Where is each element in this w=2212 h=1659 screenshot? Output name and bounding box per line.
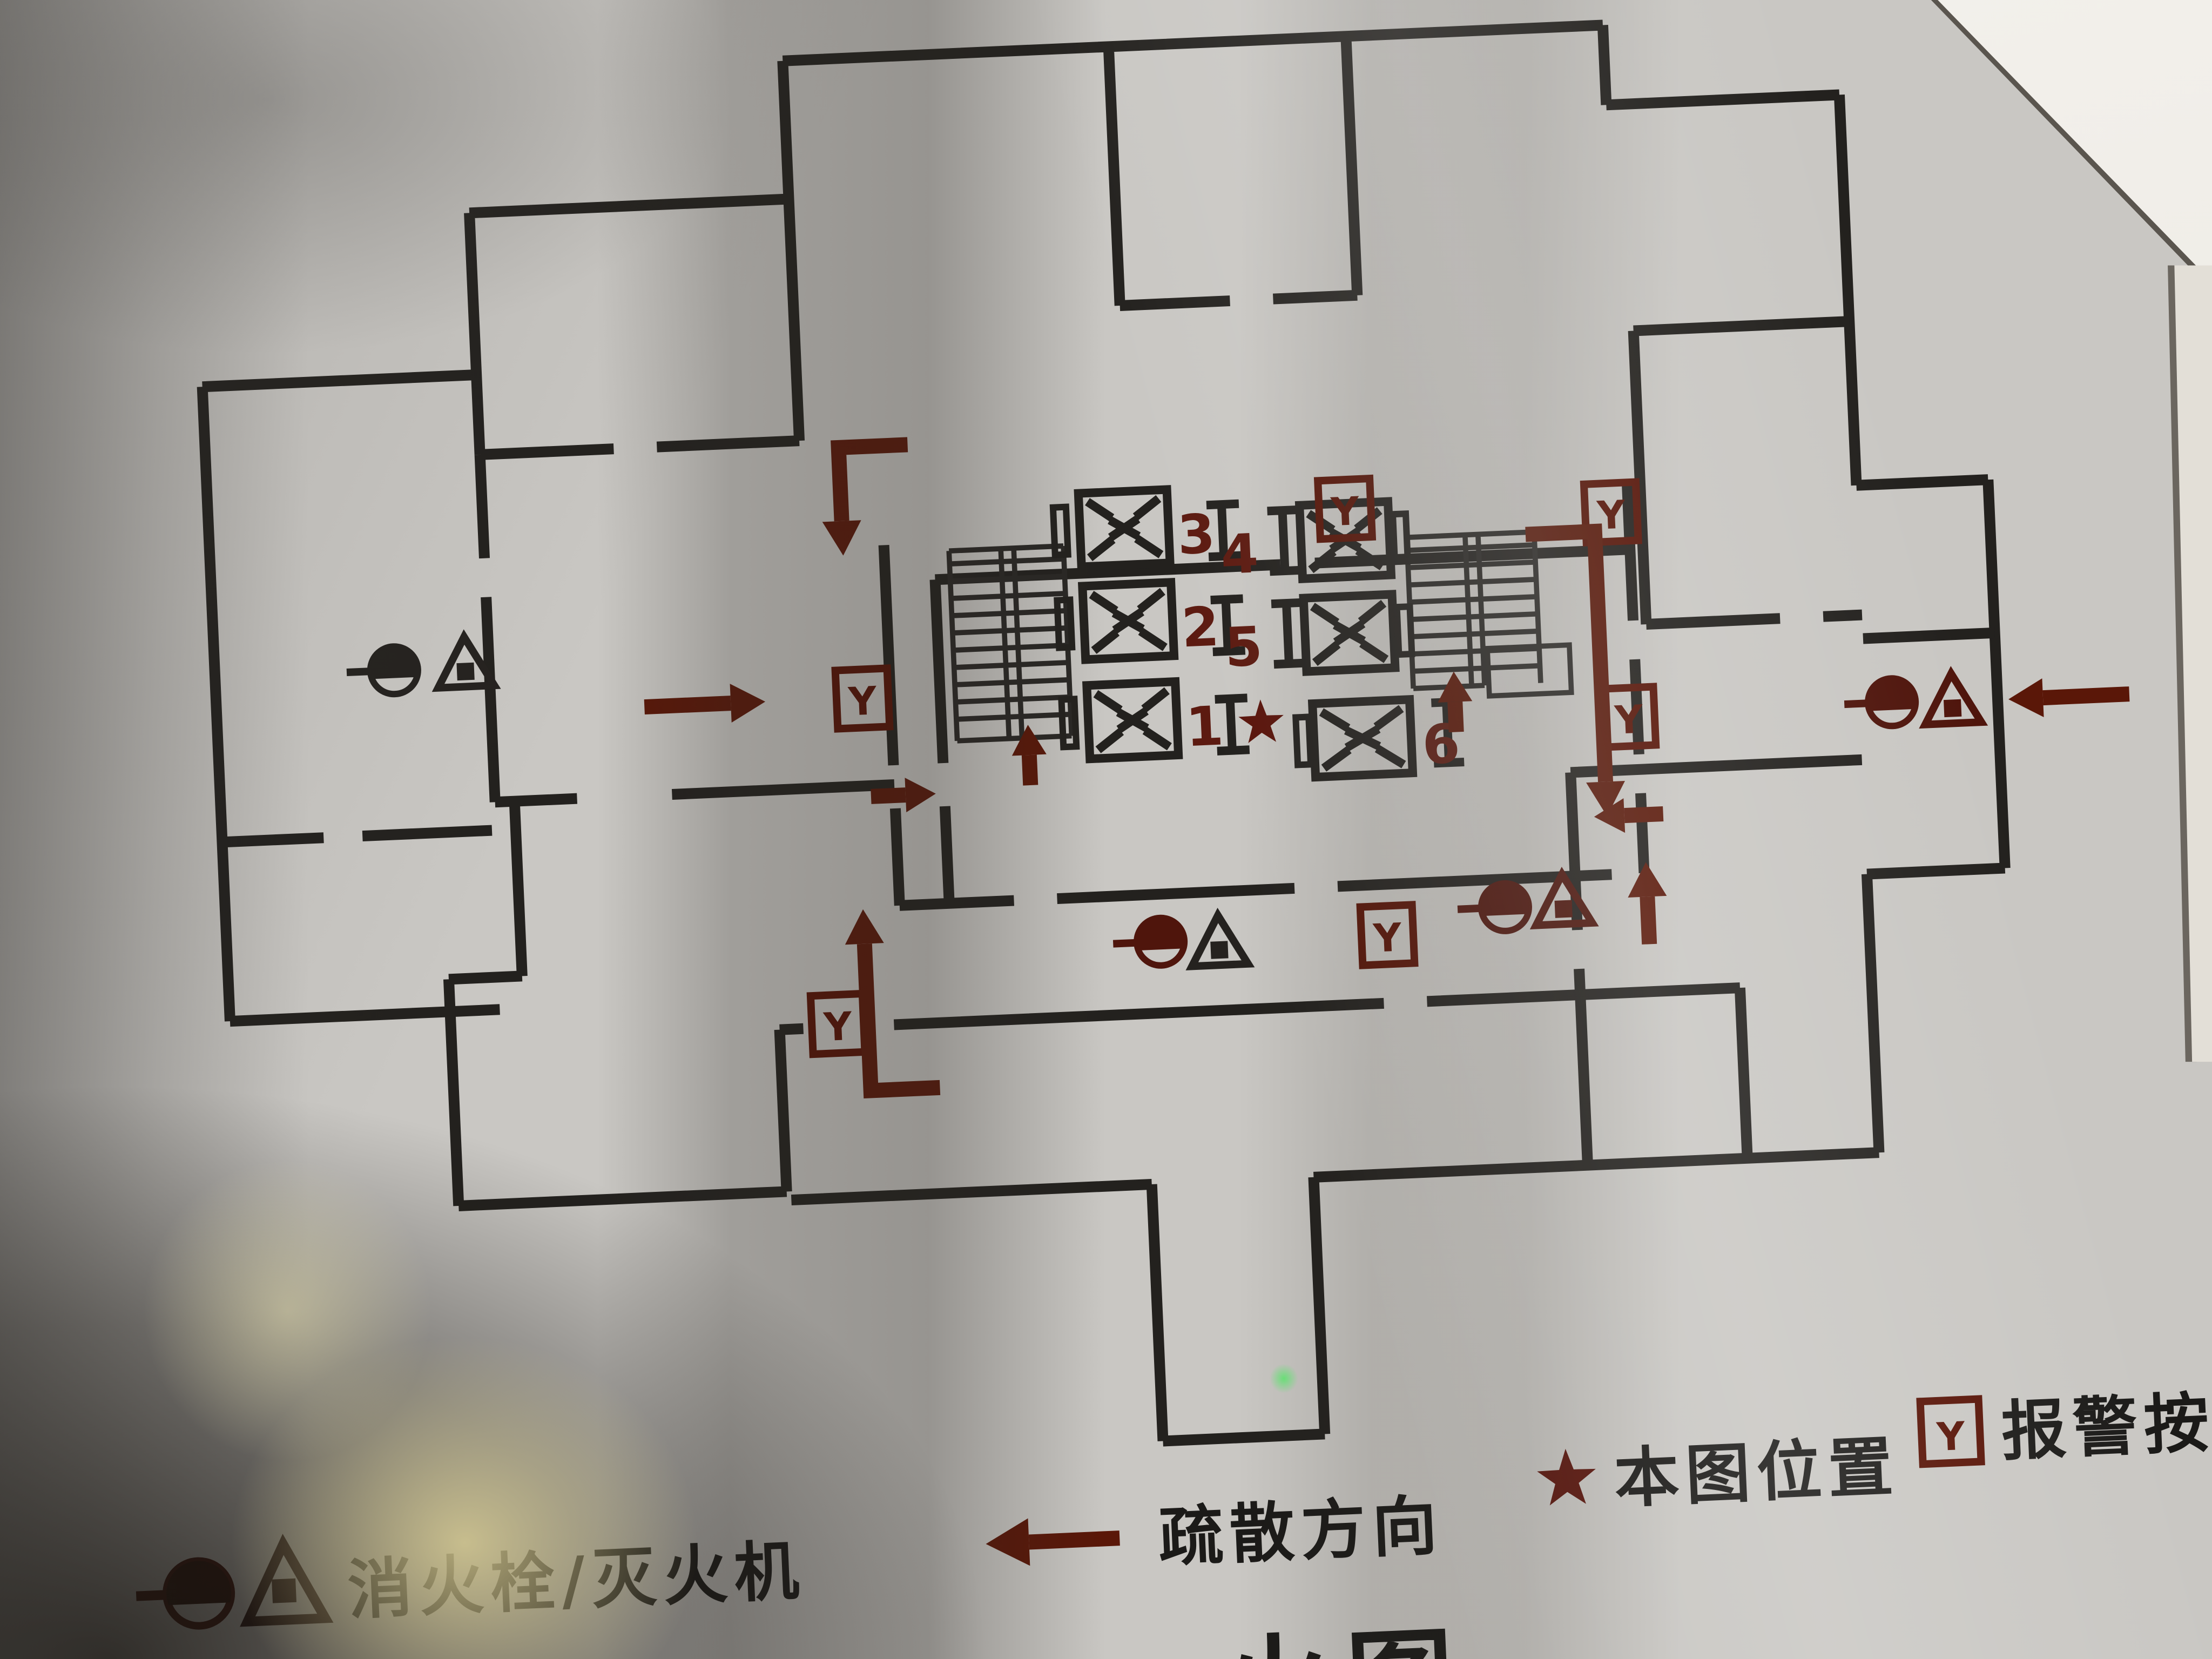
legend-location-star-icon xyxy=(1536,1447,1597,1506)
elevator-4: 4 xyxy=(1219,501,1409,586)
fire-hydrant-icon xyxy=(1456,882,1530,933)
fire-extinguisher-icon xyxy=(1923,672,1981,724)
svg-text:Y: Y xyxy=(1330,488,1361,535)
legend-evacuation-arrow-icon xyxy=(985,1514,1121,1568)
elevator-door-icon xyxy=(1296,717,1311,765)
legend-label-alarm: 报警按钮 xyxy=(2000,1382,2212,1470)
evacuation-arrow-down-elbow xyxy=(819,444,913,556)
alarm-button-icon: Y xyxy=(811,994,865,1054)
evacuation-arrow-left xyxy=(2008,675,2130,719)
elevator-number: 5 xyxy=(1223,615,1264,679)
evacuation-arrow-up xyxy=(1627,861,1669,945)
elevator-number: 4 xyxy=(1219,522,1260,586)
elevator-6: 6 xyxy=(1295,697,1461,782)
elevator-door-icon xyxy=(1397,606,1412,655)
elevator-number: 2 xyxy=(1180,595,1220,660)
alarm-button-icon: Y xyxy=(1360,905,1415,965)
svg-text:Y: Y xyxy=(1613,696,1644,743)
fire-hydrant-icon xyxy=(346,645,419,696)
elevator-5: 5 xyxy=(1223,594,1413,679)
elevator-number: 1 xyxy=(1184,694,1225,759)
legend-alarm-button-icon: Y xyxy=(1920,1399,1981,1465)
left-wing-walls xyxy=(206,401,1748,1224)
svg-text:Y: Y xyxy=(822,1003,854,1050)
current-location-star-icon xyxy=(1238,698,1285,743)
fire-hydrant-icon xyxy=(1843,677,1917,728)
legend: 消火栓/灭火机 疏散方向 本图位置 Y 报警按钮 xyxy=(131,1382,2212,1638)
elevator-2: 2 xyxy=(1056,581,1220,665)
green-led-reflection xyxy=(1270,1364,1298,1393)
evacuation-arrow-up xyxy=(1010,724,1048,786)
evacuation-arrow-right xyxy=(644,682,766,726)
legend-label-location: 本图位置 xyxy=(1613,1429,1901,1517)
elevator-number: 3 xyxy=(1176,502,1217,567)
elevator-1: 1 xyxy=(1061,679,1225,764)
svg-text:Y: Y xyxy=(847,678,878,724)
legend-fire-hydrant-icon xyxy=(135,1560,233,1629)
alarm-button-icon: Y xyxy=(835,668,890,729)
svg-text:Y: Y xyxy=(1372,914,1403,961)
elevator-3: 3 xyxy=(1053,488,1217,572)
evacuation-arrow-up-elbow xyxy=(844,906,940,1091)
legend-fire-extinguisher-icon xyxy=(244,1543,325,1622)
svg-text:Y: Y xyxy=(1935,1413,1967,1460)
sign-title-partial: 火图 xyxy=(1219,1615,1475,1659)
legend-label-direction: 疏散方向 xyxy=(1157,1488,1445,1576)
fire-extinguisher-icon xyxy=(1190,914,1248,966)
fire-hydrant-icon xyxy=(1112,917,1185,968)
evacuation-floor-plan: 3 2 1 4 5 6 xyxy=(0,0,2212,1659)
legend-label-hydrant: 消火栓/灭火机 xyxy=(346,1534,807,1629)
